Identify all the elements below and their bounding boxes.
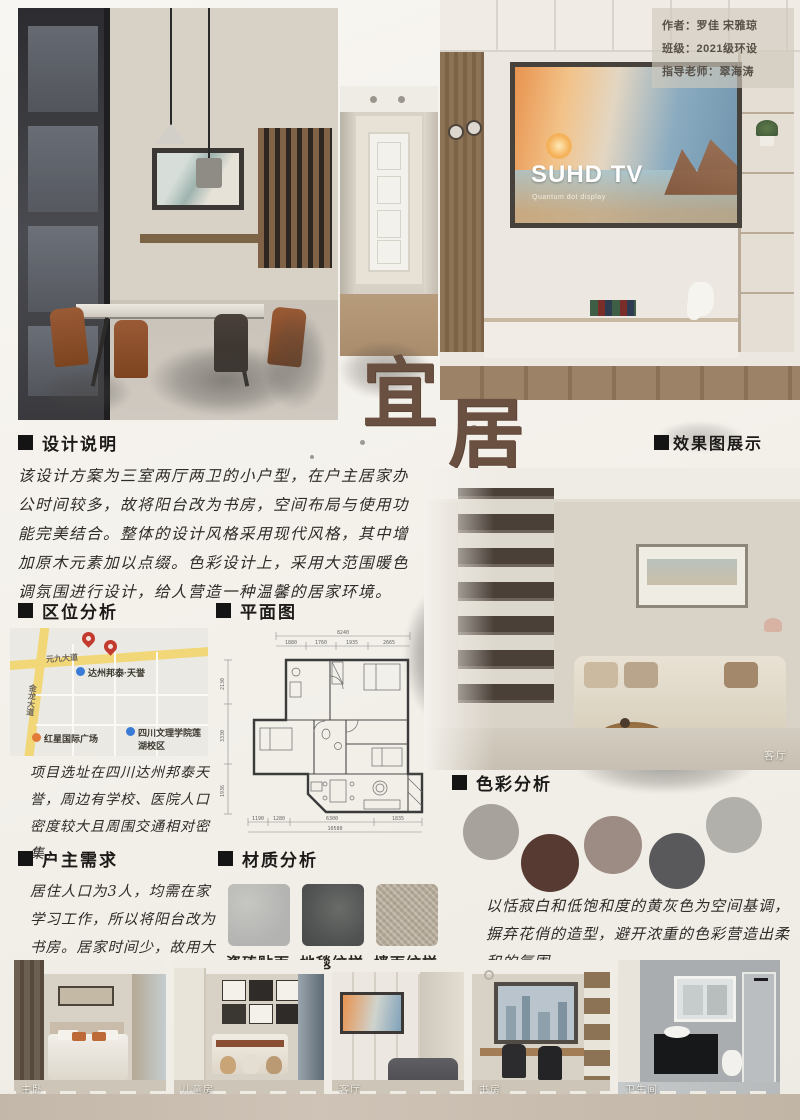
advisor-line: 指导老师：翠海涛 <box>662 63 786 79</box>
cushion <box>584 662 618 688</box>
plan-furniture <box>260 662 422 809</box>
section-design-title: 设计说明 <box>42 430 118 455</box>
section-owner-heading: 户主需求 <box>18 846 118 871</box>
map-poi-dot <box>32 733 41 742</box>
photo-caption: 书房 <box>479 1081 501 1094</box>
map-road-label-h: 元九大道 <box>46 652 79 665</box>
office-chair <box>502 1044 526 1078</box>
material-swatch-tile <box>228 884 290 946</box>
photo-caption: 客厅 <box>339 1081 361 1094</box>
section-design-heading: 设计说明 <box>18 430 118 455</box>
color-swatch-3 <box>584 816 642 874</box>
bed-runner <box>216 1040 284 1047</box>
svg-text:2665: 2665 <box>383 640 395 646</box>
living-room-render: 客厅 <box>424 468 800 770</box>
section-bullet <box>218 851 233 866</box>
pendant-lamp <box>156 124 186 144</box>
bathroom-door <box>618 960 640 1094</box>
bedroom-window <box>132 974 166 1080</box>
basin <box>664 1026 690 1038</box>
plant <box>756 120 778 136</box>
ring-light <box>484 970 494 980</box>
svg-text:1835: 1835 <box>392 816 404 822</box>
design-description-text: 该设计方案为三室两厅两卫的小户型，在户主居家办公时间较多，故将阳台改为书房，空间… <box>18 462 410 607</box>
hall-door <box>368 132 410 272</box>
svg-text:1936: 1936 <box>220 785 226 797</box>
section-colors-title: 色彩分析 <box>476 770 552 795</box>
shower-glass <box>742 972 776 1084</box>
clock <box>448 124 464 140</box>
pendant-cord <box>170 8 172 126</box>
section-bullet <box>18 851 33 866</box>
small-tv <box>340 992 404 1034</box>
study-window <box>494 982 578 1044</box>
white-wardrobe <box>174 968 206 1080</box>
mirror-cabinet <box>674 976 736 1022</box>
teddy-bear <box>242 1054 260 1074</box>
table-lamp <box>764 618 782 632</box>
wood-slat-screen <box>258 128 332 268</box>
section-colors-heading: 色彩分析 <box>452 770 552 795</box>
orange-pillow <box>72 1032 86 1041</box>
section-bullet <box>216 603 231 618</box>
svg-text:6300: 6300 <box>326 816 338 822</box>
location-map: 元九大道 金龙大道 达州邦泰·天誉 红星国际广场 四川文理学院莲湖校区 <box>10 628 208 756</box>
hallway-photo <box>340 86 438 356</box>
svg-text:1880: 1880 <box>285 640 297 646</box>
section-floorplan-heading: 平面图 <box>216 598 297 623</box>
section-materials-title: 材质分析 <box>242 846 318 871</box>
color-swatch-4 <box>649 833 705 889</box>
photo-bathroom: 卫生间 <box>618 960 780 1094</box>
tv-console <box>484 318 738 358</box>
dining-chair <box>49 306 89 367</box>
map-poi-dot <box>76 667 85 676</box>
downlight <box>398 96 405 103</box>
downlight <box>370 96 377 103</box>
console-table <box>140 234 268 243</box>
material-swatch-wallpaper <box>376 884 438 946</box>
color-swatch-5 <box>706 797 762 853</box>
photo-kids-room: 儿童房 <box>174 960 324 1094</box>
map-poi-dot <box>126 727 135 736</box>
section-materials-heading: 材质分析 <box>218 846 318 871</box>
svg-text:1190: 1190 <box>252 816 264 822</box>
wardrobe <box>14 960 44 1080</box>
shower-head <box>754 978 768 981</box>
map-pin <box>79 629 97 647</box>
svg-text:1760: 1760 <box>315 640 327 646</box>
section-renders-title: 效果图展示 <box>673 430 763 454</box>
framed-art <box>636 544 748 608</box>
orange-pillow <box>92 1032 106 1041</box>
pendant-cord <box>208 8 210 160</box>
photo-master-bedroom: 主卧 <box>14 960 166 1094</box>
pendant-lamp <box>196 158 222 188</box>
poster-title-char-1: 宜 <box>362 356 438 432</box>
tv-subtitle-text: Quantum dot display <box>532 194 606 201</box>
design-poster: SUHD TV Quantum dot display 作者：罗佳 宋雅琼 班级… <box>0 0 800 1094</box>
material-swatch-carpet <box>302 884 364 946</box>
inner-walls <box>286 660 422 812</box>
photo-caption: 卫生间 <box>625 1081 658 1094</box>
photo-caption: 儿童房 <box>181 1081 214 1094</box>
wood-cabinet <box>440 52 484 352</box>
author-line: 作者：罗佳 宋雅琼 <box>662 17 786 33</box>
section-renders-heading: 效果图展示 <box>654 430 763 454</box>
section-bullet <box>18 603 33 618</box>
bed <box>48 1034 128 1080</box>
wall-background <box>0 1094 800 1120</box>
tv-screen: SUHD TV Quantum dot display <box>515 67 737 223</box>
poster-title-char-2: 居 <box>448 396 524 472</box>
photo-living-room: 客厅 <box>332 960 464 1094</box>
svg-text:3330: 3330 <box>220 730 226 742</box>
color-swatch-1 <box>463 804 519 860</box>
bedroom-art <box>58 986 114 1006</box>
teddy-bear <box>220 1056 236 1074</box>
clock <box>466 120 482 136</box>
open-shelves <box>738 52 794 352</box>
living-room-label: 客厅 <box>764 747 788 762</box>
map-poi-plaza: 红星国际广场 <box>32 732 98 745</box>
photo-study: 书房 <box>472 960 610 1094</box>
dim-bottom-total: 10580 <box>327 826 342 832</box>
poster-grid <box>222 980 300 1024</box>
tv-brand-text: SUHD TV <box>531 161 643 189</box>
svg-text:1280: 1280 <box>273 816 285 822</box>
svg-text:1935: 1935 <box>346 640 358 646</box>
cushion <box>624 662 658 688</box>
section-bullet <box>452 775 467 790</box>
books <box>590 300 636 316</box>
photo-caption: 主卧 <box>21 1081 43 1094</box>
svg-text:2130: 2130 <box>220 678 226 690</box>
section-bullet <box>18 435 33 450</box>
floor-plan: 8240 1880 1760 1935 2665 2130 3330 1936 … <box>212 622 432 838</box>
section-bullet <box>654 435 669 450</box>
class-line: 班级：2021级环设 <box>662 40 786 56</box>
color-swatch-2 <box>521 834 579 892</box>
outer-walls <box>254 660 422 812</box>
kids-window <box>298 974 324 1080</box>
office-chair <box>538 1046 562 1080</box>
credits-box: 作者：罗佳 宋雅琼 班级：2021级环设 指导老师：翠海涛 <box>652 8 794 88</box>
section-floorplan-title: 平面图 <box>240 598 297 623</box>
study-shelf <box>584 972 610 1080</box>
cushion <box>724 662 758 688</box>
map-poi-main: 达州邦泰·天誉 <box>76 666 145 679</box>
vanity <box>654 1034 718 1074</box>
section-owner-title: 户主需求 <box>42 846 118 871</box>
section-location-title: 区位分析 <box>42 598 118 623</box>
map-poi-college: 四川文理学院莲湖校区 <box>126 726 202 752</box>
teddy-bear <box>266 1056 282 1074</box>
desk <box>480 1048 584 1056</box>
toilet <box>722 1050 742 1076</box>
teapot <box>688 282 714 316</box>
section-location-heading: 区位分析 <box>18 598 118 623</box>
dim-top-total: 8240 <box>337 630 349 636</box>
